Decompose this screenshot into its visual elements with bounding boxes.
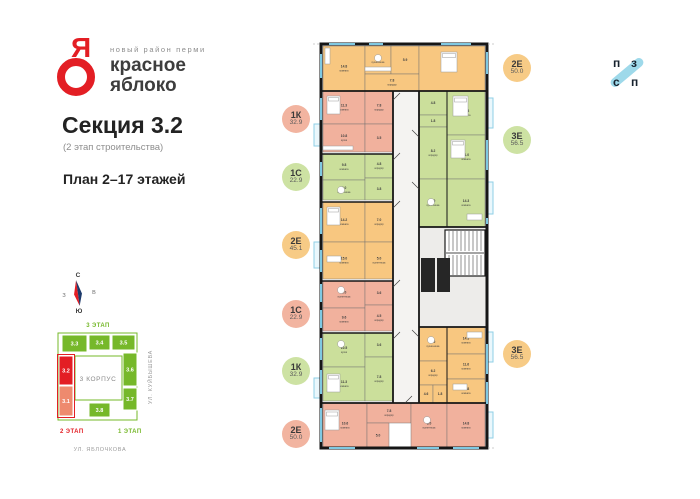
room-area: 4.6 — [424, 392, 429, 396]
section-subtitle: (2 этап строительства) — [63, 142, 163, 153]
section-title: Секция 3.2 — [62, 112, 183, 139]
badge-area: 56.5 — [511, 355, 524, 362]
room-area: 11.6 — [463, 363, 469, 367]
room-name: комната — [339, 385, 349, 388]
apartment-badge-3Е-56.5: 3Е56.5 — [503, 126, 531, 154]
room-area: 4.5 — [377, 314, 382, 318]
badge-type: 2Е — [511, 60, 522, 69]
apartment-badge-2Е-50.0: 2Е50.0 — [282, 420, 310, 448]
room-name: комната — [461, 342, 471, 345]
room-area: 11.3 — [341, 104, 347, 108]
apartment-left-1S-lower: 5.0кухня-ниша9.6комната3.64.5коридор — [323, 281, 393, 331]
badge-type: 1С — [290, 169, 302, 178]
apartment-top-2E: 14.8комната5.9кухня-ниша5.97.8коридор16.… — [323, 46, 485, 91]
brand-logo: Я новый район перми красное яблоко — [0, 0, 230, 110]
room-area: 3.6 — [377, 291, 382, 295]
room-area: 5.9 — [403, 58, 408, 62]
room-name: комната — [339, 321, 349, 324]
floor-plan: 14.8комната5.9кухня-ниша5.97.8коридор16.… — [313, 42, 495, 454]
room-name: коридор — [374, 167, 384, 170]
badge-type: 2Е — [290, 426, 301, 435]
badge-type: 1С — [290, 306, 302, 315]
apple-ring-icon — [57, 58, 95, 96]
room-area: 7.8 — [377, 375, 382, 379]
elevator-shaft — [421, 258, 435, 292]
room-area: 7.8 — [387, 409, 392, 413]
badge-type: 1К — [291, 111, 302, 120]
compass-west: З — [62, 293, 66, 299]
room-name: комната — [339, 109, 349, 112]
map-section-label: 3.1 — [62, 399, 70, 405]
apartment-badge-2Е-50.0: 2Е50.0 — [503, 54, 531, 82]
badge-area: 56.5 — [511, 141, 524, 148]
room-name: коридор — [374, 319, 384, 322]
street-yablochkova: УЛ. ЯБЛОЧКОВА — [74, 447, 127, 453]
apartment-badge-1С-22.9: 1С22.9 — [282, 163, 310, 191]
room-name: кухня-ниша — [373, 262, 386, 265]
plan-title: План 2–17 этажей — [63, 171, 185, 187]
apartment-badge-1С-22.9: 1С22.9 — [282, 300, 310, 328]
room-area: 4.8 — [431, 101, 436, 105]
room-name: комната — [461, 392, 471, 395]
building-label: 3 КОРПУС — [80, 376, 117, 383]
room-name: коридор — [374, 380, 384, 383]
badge-area: 32.9 — [290, 372, 303, 379]
room-area: 14.8 — [463, 422, 470, 426]
compass-icon: С Ю З В — [56, 268, 100, 314]
badge-area: 50.0 — [511, 69, 524, 76]
room-name: коридор — [374, 109, 384, 112]
logo-letter: Я — [71, 34, 91, 62]
room-area: 9.6 — [342, 316, 347, 320]
room-area: 4.8 — [377, 162, 382, 166]
room-name: коридор — [428, 374, 438, 377]
room-name: кухня — [341, 139, 348, 142]
apartment-badge-1К-32.9: 1К32.9 — [282, 357, 310, 385]
map-section-label: 3.5 — [120, 341, 128, 347]
map-section-label: 3.8 — [96, 408, 104, 414]
developer-letter: с — [613, 76, 620, 88]
room-name: комната — [339, 70, 349, 73]
street-kuybysheva: УЛ. КУЙБЫШЕВА — [146, 350, 154, 404]
developer-logo: п з с п — [604, 50, 650, 96]
room-area: 3.8 — [377, 187, 382, 191]
apartment-left-1S-upper: 9.8комната5.0кухня-ниша4.8коридор3.8 — [323, 154, 393, 200]
brand-name-line1: красное — [110, 56, 186, 76]
stage3-label: 3 ЭТАП — [86, 323, 110, 329]
map-section-label: 3.3 — [71, 342, 79, 348]
room-area: 7.0 — [377, 218, 382, 222]
room-area: 10.8 — [341, 134, 348, 138]
room-area: 5.0 — [377, 257, 382, 261]
room-area: 15.0 — [341, 257, 348, 261]
map-section-label: 3.6 — [126, 368, 134, 374]
room-area: 14.2 — [341, 218, 348, 222]
room-name: кухня — [341, 351, 348, 354]
map-section-label: 3.7 — [126, 397, 134, 403]
room-area: 7.8 — [390, 79, 395, 83]
room-area: 14.3 — [463, 199, 470, 203]
brand-tagline: новый район перми — [110, 45, 206, 54]
badge-type: 3Е — [511, 132, 522, 141]
room-area: 3.5 — [377, 136, 382, 140]
apartment-right-3E-green: 4.81.88.2коридор5.0кухня-ниша10.8комната… — [419, 91, 485, 227]
room-area: 11.3 — [341, 380, 347, 384]
badge-type: 3Е — [511, 346, 522, 355]
apartment-badge-3Е-56.5: 3Е56.5 — [503, 340, 531, 368]
badge-area: 45.1 — [290, 246, 303, 253]
room-area: 9.8 — [342, 163, 347, 167]
room-area: 5.0 — [376, 434, 381, 438]
apartment-badge-1К-32.9: 1К32.9 — [282, 105, 310, 133]
room-area: 14.8 — [341, 65, 348, 69]
room-area: 6.2 — [431, 369, 436, 373]
room-area: 8.2 — [431, 149, 436, 153]
badge-area: 22.9 — [290, 178, 303, 185]
room-name: комната — [339, 223, 349, 226]
badge-area: 32.9 — [290, 120, 303, 127]
apartment-badge-2Е-45.1: 2Е45.1 — [282, 231, 310, 259]
compass-east: В — [92, 290, 96, 296]
room-area: 1.8 — [431, 119, 436, 123]
room-name: комната — [461, 158, 471, 161]
room-name: кухня-ниша — [427, 345, 440, 348]
developer-letter: з — [631, 57, 637, 69]
room-name: комната — [461, 427, 471, 430]
room-name: комната — [339, 168, 349, 171]
room-name: коридор — [387, 84, 397, 87]
room-area: 7.8 — [377, 104, 382, 108]
developer-letter: п — [613, 57, 620, 69]
room-name: коридор — [374, 223, 384, 226]
badge-area: 50.0 — [290, 435, 303, 442]
compass-south: Ю — [76, 308, 83, 314]
room-name: кухня-ниша — [338, 296, 351, 299]
brand-name: красное яблоко — [110, 56, 186, 96]
badge-area: 22.9 — [290, 315, 303, 322]
brand-name-line2: яблоко — [110, 76, 186, 96]
room-area: 1.8 — [438, 392, 443, 396]
page: Я новый район перми красное яблоко Секци… — [0, 0, 700, 499]
map-section-label: 3.4 — [96, 341, 105, 347]
badge-type: 2Е — [290, 237, 301, 246]
stage1-label: 1 ЭТАП — [118, 429, 142, 435]
developer-letter: п — [631, 76, 638, 88]
elevator-shaft — [437, 258, 450, 292]
room-name: коридор — [384, 414, 394, 417]
badge-type: 1К — [291, 363, 302, 372]
room-name: комната — [461, 204, 471, 207]
room-name: коридор — [428, 154, 438, 157]
map-section-label: 3.2 — [62, 369, 70, 375]
room-name: комната — [340, 427, 350, 430]
compass-needle — [72, 280, 84, 307]
room-area: 10.6 — [342, 422, 349, 426]
compass-north: С — [76, 272, 81, 279]
site-map: 3.33.43.53.23.13.63.73.8 3 КОРПУС 3 ЭТАП… — [48, 320, 198, 470]
stage2-label: 2 ЭТАП — [60, 429, 84, 435]
room-area: 3.6 — [377, 343, 382, 347]
room-name: комната — [461, 368, 471, 371]
common-corridor — [393, 91, 419, 403]
room-name: кухня-ниша — [423, 427, 436, 430]
